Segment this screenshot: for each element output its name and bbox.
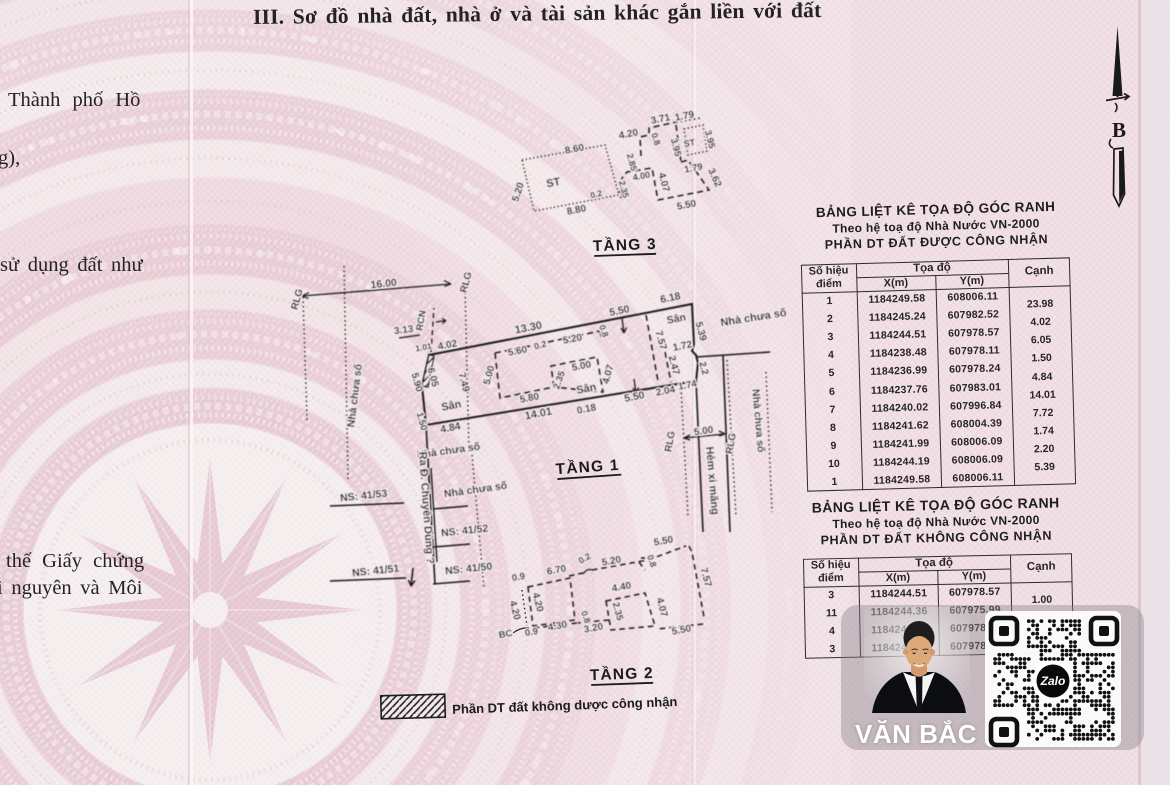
svg-text:VĂN BẮC: VĂN BẮC: [855, 719, 977, 749]
svg-text:Zalo: Zalo: [1040, 674, 1066, 688]
